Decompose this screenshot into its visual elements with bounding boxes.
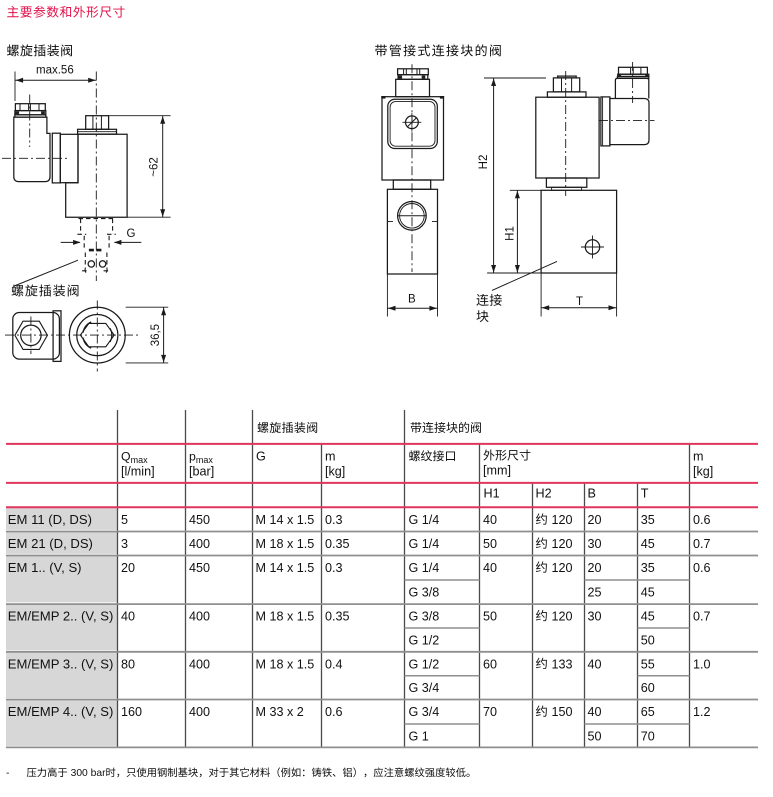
svg-text:55: 55 [641,657,655,671]
svg-text:-: - [6,768,9,779]
svg-text:65: 65 [641,705,655,719]
svg-text:60: 60 [641,681,655,695]
svg-text:EM/EMP 4.. (V, S): EM/EMP 4.. (V, S) [8,704,114,719]
svg-text:20: 20 [588,561,602,575]
svg-text:EM 11 (D, DS): EM 11 (D, DS) [8,512,92,527]
svg-text:G 1/4: G 1/4 [409,561,440,575]
svg-text:M 18 x 1.5: M 18 x 1.5 [256,537,315,551]
svg-text:G 3/8: G 3/8 [409,610,440,624]
svg-text:120: 120 [552,610,573,624]
svg-text:H1: H1 [505,226,517,241]
svg-text:1.2: 1.2 [693,705,711,719]
svg-text:G 3/8: G 3/8 [409,586,440,600]
svg-text:0.6: 0.6 [325,705,343,719]
svg-text:m: m [693,450,704,464]
svg-text:G: G [256,450,266,464]
svg-text:[kg]: [kg] [325,464,345,478]
svg-text:[l/min]: [l/min] [121,464,155,478]
svg-text:20: 20 [588,513,602,527]
svg-text:5: 5 [121,513,128,527]
svg-text:450: 450 [189,561,210,575]
svg-text:150: 150 [552,705,573,719]
svg-text:[bar]: [bar] [189,464,214,478]
svg-text:M 14 x 1.5: M 14 x 1.5 [256,513,315,527]
svg-text:45: 45 [641,610,655,624]
svg-text:70: 70 [483,705,497,719]
svg-text:25: 25 [588,586,602,600]
svg-text:M 33 x 2: M 33 x 2 [256,705,304,719]
svg-text:40: 40 [588,705,602,719]
svg-text:40: 40 [588,657,602,671]
svg-text:G 1/4: G 1/4 [409,537,440,551]
svg-text:EM/EMP 3.. (V, S): EM/EMP 3.. (V, S) [8,656,114,671]
svg-text:120: 120 [552,513,573,527]
svg-text:3: 3 [121,537,128,551]
svg-text:50: 50 [641,634,655,648]
svg-text:T: T [576,296,583,308]
svg-text:G: G [127,228,136,240]
svg-text:30: 30 [588,537,602,551]
svg-text:36,5: 36,5 [150,324,162,346]
svg-text:M 14 x 1.5: M 14 x 1.5 [256,561,315,575]
svg-text:G 3/4: G 3/4 [409,681,440,695]
svg-text:[kg]: [kg] [693,464,713,478]
svg-text:80: 80 [121,657,135,671]
svg-text:35: 35 [641,513,655,527]
svg-text:0.6: 0.6 [693,561,711,575]
svg-text:400: 400 [189,610,210,624]
svg-text:40: 40 [121,610,135,624]
svg-text:EM 1.. (V, S): EM 1.. (V, S) [8,560,82,575]
svg-text:60: 60 [483,657,497,671]
svg-text:50: 50 [483,537,497,551]
svg-text:0.35: 0.35 [325,610,350,624]
svg-text:T: T [641,487,649,501]
svg-text:0.3: 0.3 [325,513,343,527]
svg-text:Qmax: Qmax [121,450,148,466]
svg-text:[mm]: [mm] [483,463,511,477]
svg-text:0.7: 0.7 [693,610,711,624]
svg-text:50: 50 [588,729,602,743]
svg-text:120: 120 [552,537,573,551]
svg-text:EM/EMP 2.. (V, S): EM/EMP 2.. (V, S) [8,609,114,624]
svg-text:B: B [408,294,416,306]
svg-text:B: B [588,487,596,501]
svg-text:0.35: 0.35 [325,537,350,551]
svg-text:pmax: pmax [189,450,213,466]
svg-text:50: 50 [483,610,497,624]
svg-text:G 3/4: G 3/4 [409,705,440,719]
svg-text:40: 40 [483,513,497,527]
svg-text:300 bar: 300 bar [71,768,106,779]
svg-text:G 1/2: G 1/2 [409,657,440,671]
svg-text:20: 20 [121,561,135,575]
svg-text:120: 120 [552,561,573,575]
svg-text:45: 45 [641,586,655,600]
svg-text:max.56: max.56 [36,65,74,77]
svg-text:M 18 x 1.5: M 18 x 1.5 [256,657,315,671]
svg-text:G 1/2: G 1/2 [409,634,440,648]
svg-text:400: 400 [189,657,210,671]
svg-text:G 1: G 1 [409,729,429,743]
svg-text:1.0: 1.0 [693,657,711,671]
svg-text:450: 450 [189,513,210,527]
svg-text:400: 400 [189,705,210,719]
svg-text:m: m [325,450,336,464]
svg-text:45: 45 [641,537,655,551]
svg-text:0.6: 0.6 [693,513,711,527]
svg-text:G 1/4: G 1/4 [409,513,440,527]
svg-text:160: 160 [121,705,142,719]
svg-text:30: 30 [588,610,602,624]
svg-text:H1: H1 [484,487,500,501]
svg-text:0.4: 0.4 [325,657,343,671]
svg-text:M 18 x 1.5: M 18 x 1.5 [256,610,315,624]
svg-text:H2: H2 [536,487,552,501]
svg-text:400: 400 [189,537,210,551]
svg-text:~62: ~62 [149,157,161,177]
svg-text:40: 40 [483,561,497,575]
svg-text:0.3: 0.3 [325,561,343,575]
svg-text:35: 35 [641,561,655,575]
svg-text:70: 70 [641,729,655,743]
svg-text:EM 21 (D, DS): EM 21 (D, DS) [8,536,93,551]
svg-text:H2: H2 [478,155,490,170]
svg-text:0.7: 0.7 [693,537,711,551]
svg-text:133: 133 [552,657,573,671]
